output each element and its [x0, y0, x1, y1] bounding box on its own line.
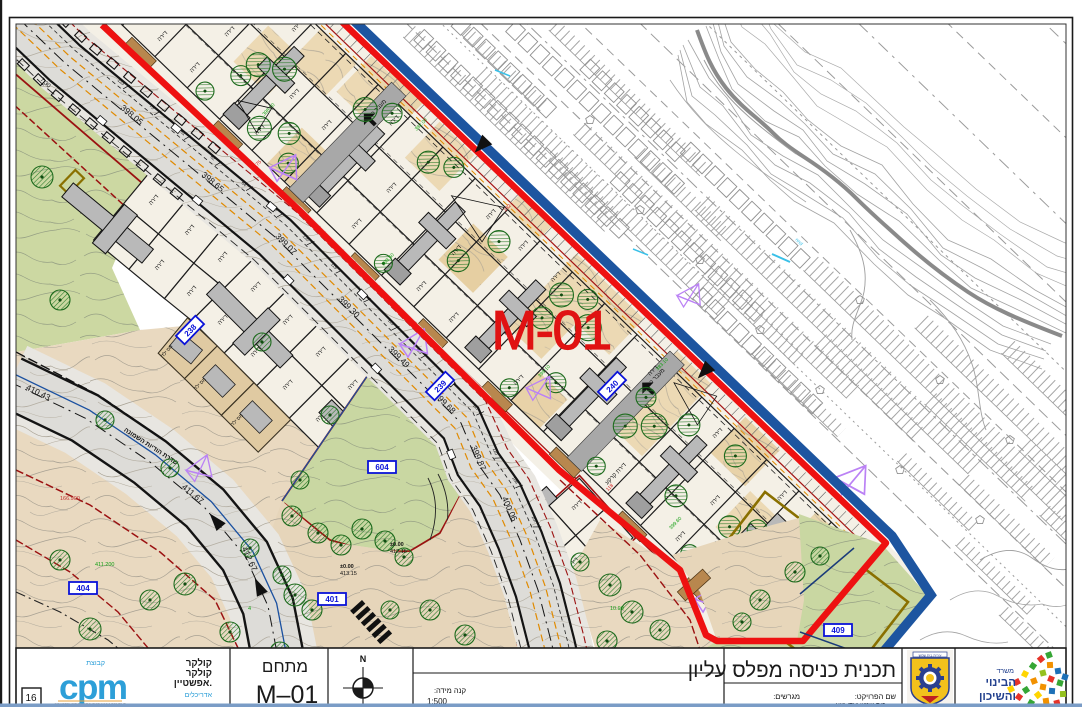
svg-text:תכנית כניסה מפלס עליון: תכנית כניסה מפלס עליון	[688, 659, 896, 682]
svg-text:הבינוי: הבינוי	[985, 677, 1016, 689]
svg-text::מגרשים: :מגרשים	[773, 692, 800, 701]
svg-text:אפשטיין.: אפשטיין.	[174, 678, 212, 689]
svg-text:מתחם: מתחם	[262, 657, 308, 676]
svg-text:M–01: M–01	[256, 681, 319, 707]
svg-text:אדריכלים: אדריכלים	[185, 691, 213, 699]
svg-text::קנה מידה: :קנה מידה	[434, 686, 467, 695]
svg-text:משרד: משרד	[997, 668, 1015, 675]
svg-text::שם הפרויקט: :שם הפרויקט	[855, 692, 897, 701]
svg-text:±0.00: ±0.00	[390, 542, 404, 548]
svg-text:והשיכון: והשיכון	[979, 691, 1016, 703]
svg-text:קבוצת: קבוצת	[86, 660, 105, 667]
svg-text:412.15: 412.15	[390, 549, 407, 555]
svg-text:±0.00: ±0.00	[340, 564, 354, 570]
svg-text:166.900: 166.900	[60, 496, 80, 502]
svg-text:עירית בית שמש: עירית בית שמש	[919, 654, 942, 658]
svg-text:411.200: 411.200	[95, 562, 114, 568]
svg-text:N: N	[360, 654, 367, 664]
svg-text:M-01: M-01	[491, 299, 610, 361]
svg-text:413.15: 413.15	[340, 571, 357, 577]
svg-text:16: 16	[25, 693, 37, 704]
svg-text:409: 409	[831, 626, 845, 635]
svg-text:404: 404	[76, 584, 90, 593]
svg-text:401: 401	[325, 595, 339, 604]
svg-text:604: 604	[375, 463, 389, 472]
